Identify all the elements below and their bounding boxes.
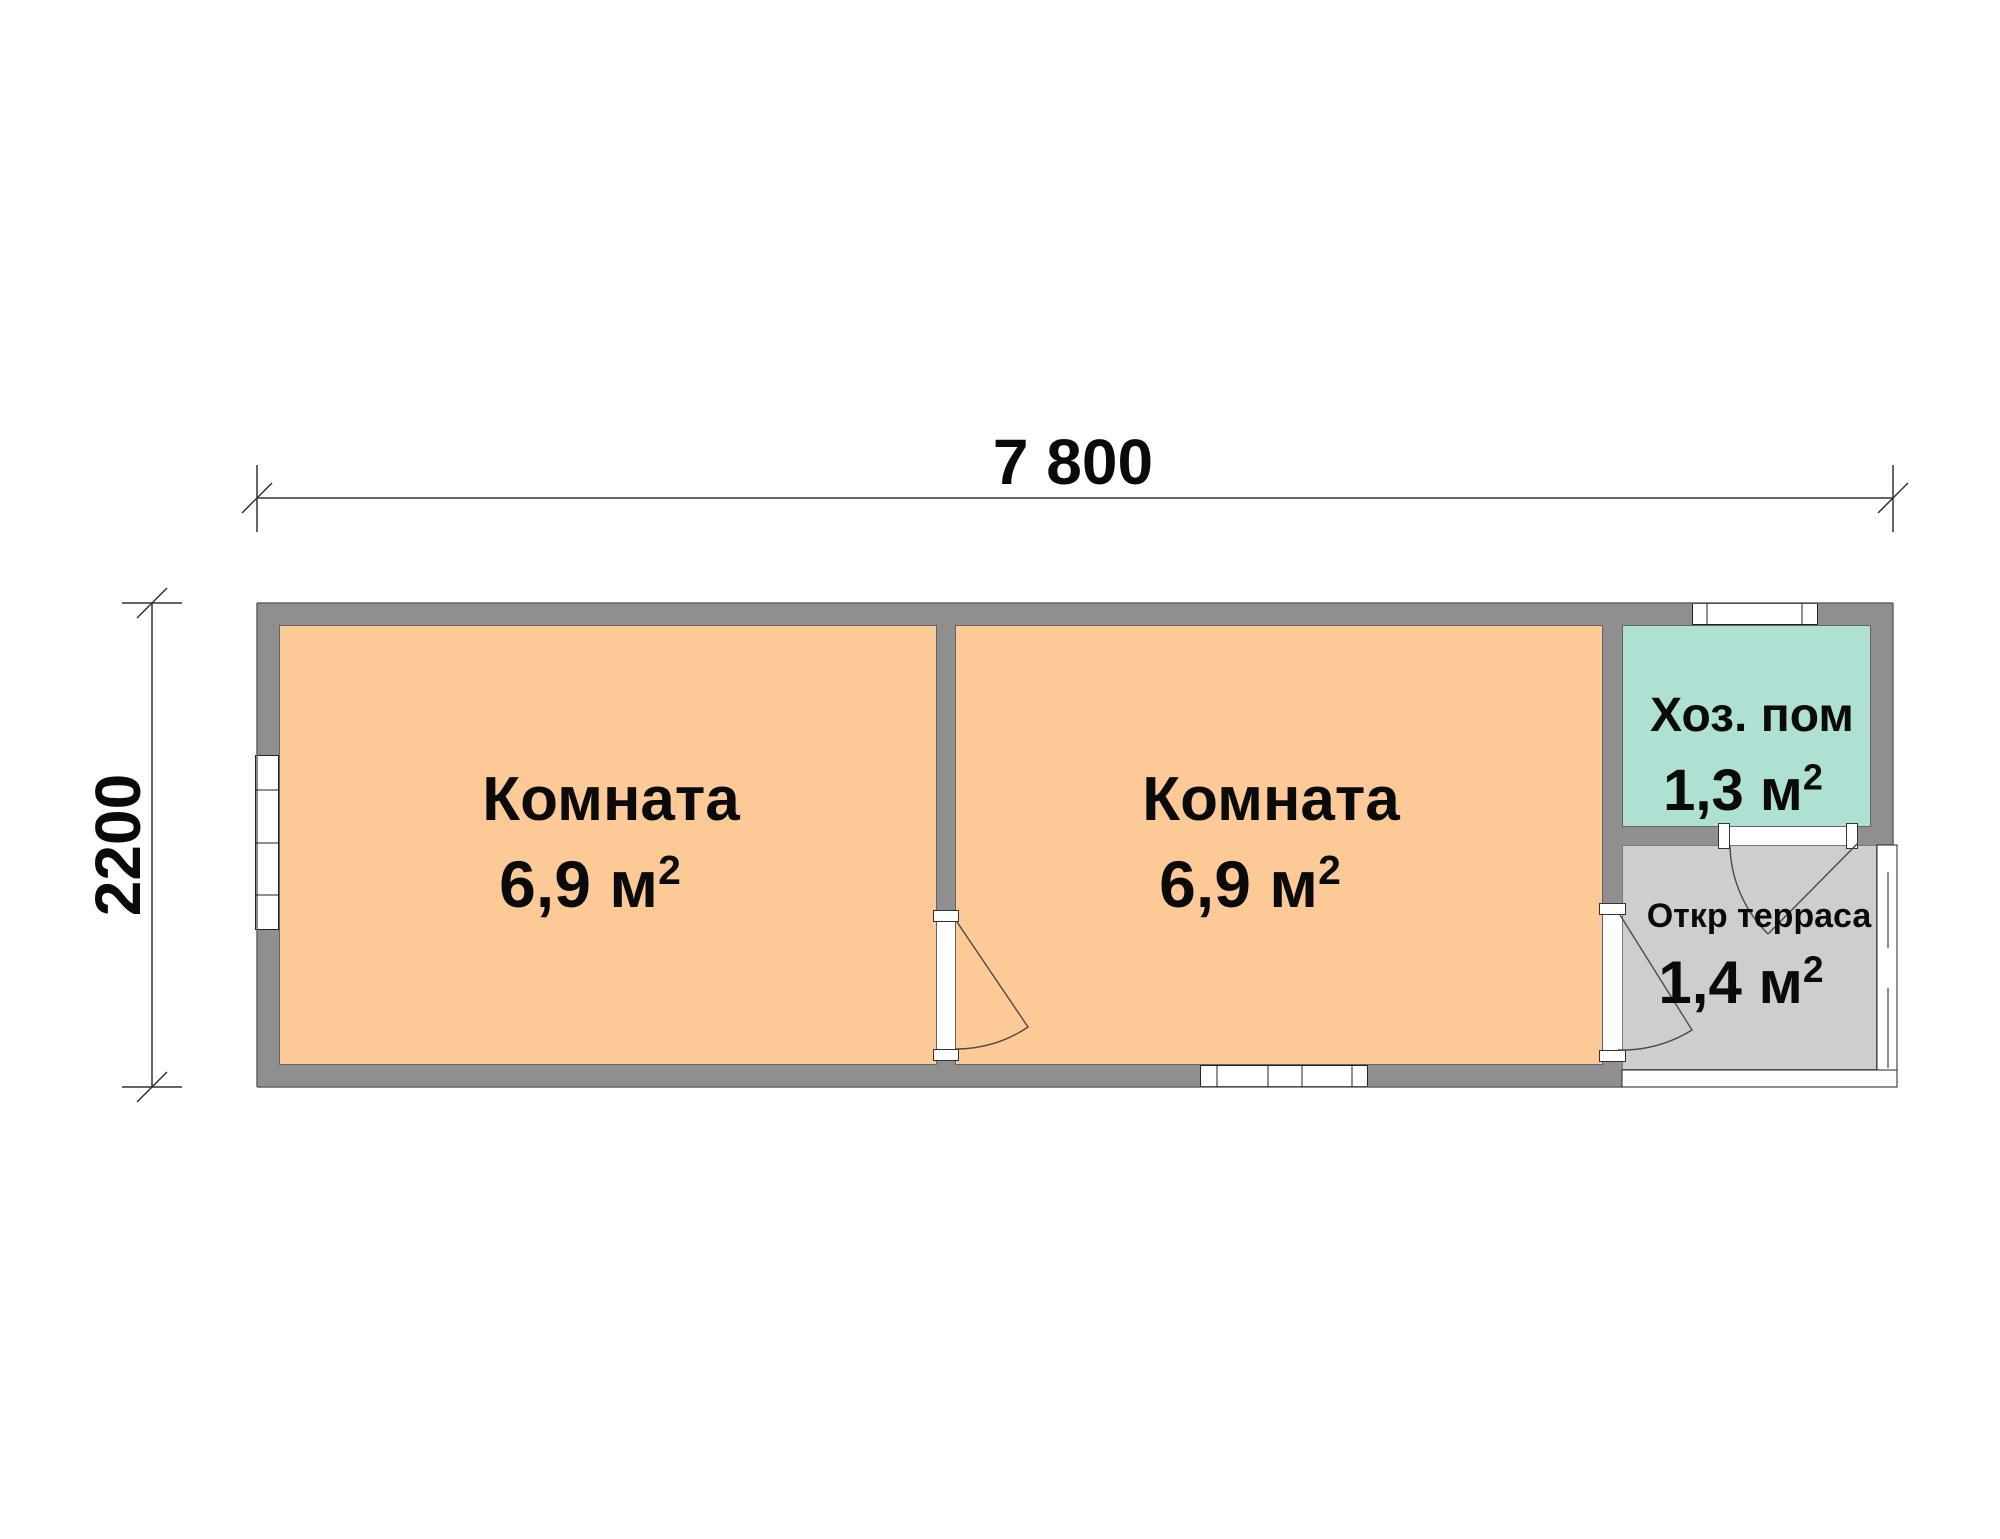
room-2-area: 6,9 м2 [1159,851,1341,917]
window-bottom-wall [1200,1065,1368,1087]
dimension-width-label: 7 800 [993,430,1153,494]
door-3-jamb-right [1846,823,1858,849]
wall-right-segment [1871,603,1893,845]
floor-plan-page: { "title": "floor-plan", "dimensions": {… [0,0,2000,1539]
door-1-jamb-bottom [933,1049,959,1061]
partition-2-upper [1603,625,1622,915]
wall-top-left-segment [257,603,1692,625]
room-1-name: Комната [482,769,740,831]
room-1-fill [279,625,937,1065]
terrace-area-value: 1,4 м [1658,949,1802,1016]
window-left-wall [255,755,279,930]
door-2-jamb-bottom [1599,1050,1626,1062]
wall-bottom-mid-segment [1368,1065,1622,1087]
door-1-jamb-top [933,910,959,922]
terrace-area: 1,4 м2 [1658,953,1823,1013]
room-2-name: Комната [1142,769,1400,831]
partition-3-right [1858,827,1871,845]
room-2-area-sup: 2 [1318,847,1341,893]
dimension-height-label: 2200 [86,774,150,916]
room-1-area: 6,9 м2 [499,851,681,917]
room-1-area-sup: 2 [658,847,681,893]
utility-room-area: 1,3 м2 [1663,762,1823,820]
terrace-area-sup: 2 [1803,948,1824,990]
room-2-area-value: 6,9 м [1159,847,1318,921]
window-top-wall [1692,603,1818,625]
wall-bottom-left-segment [257,1065,1200,1087]
door-3-jamb-left [1718,823,1730,849]
wall-left-lower-segment [257,930,279,1087]
partition-1-upper [937,625,955,922]
door-2-jamb-top [1599,903,1626,915]
wall-left-upper-segment [257,603,279,755]
utility-room-area-sup: 2 [1803,757,1823,798]
room-1-area-value: 6,9 м [499,847,658,921]
partition-3-left [1622,827,1730,845]
utility-room-name: Хоз. пом [1650,692,1854,740]
terrace-name: Откр терраса [1647,899,1872,933]
room-2-fill [955,625,1603,1065]
utility-room-area-value: 1,3 м [1663,758,1803,823]
